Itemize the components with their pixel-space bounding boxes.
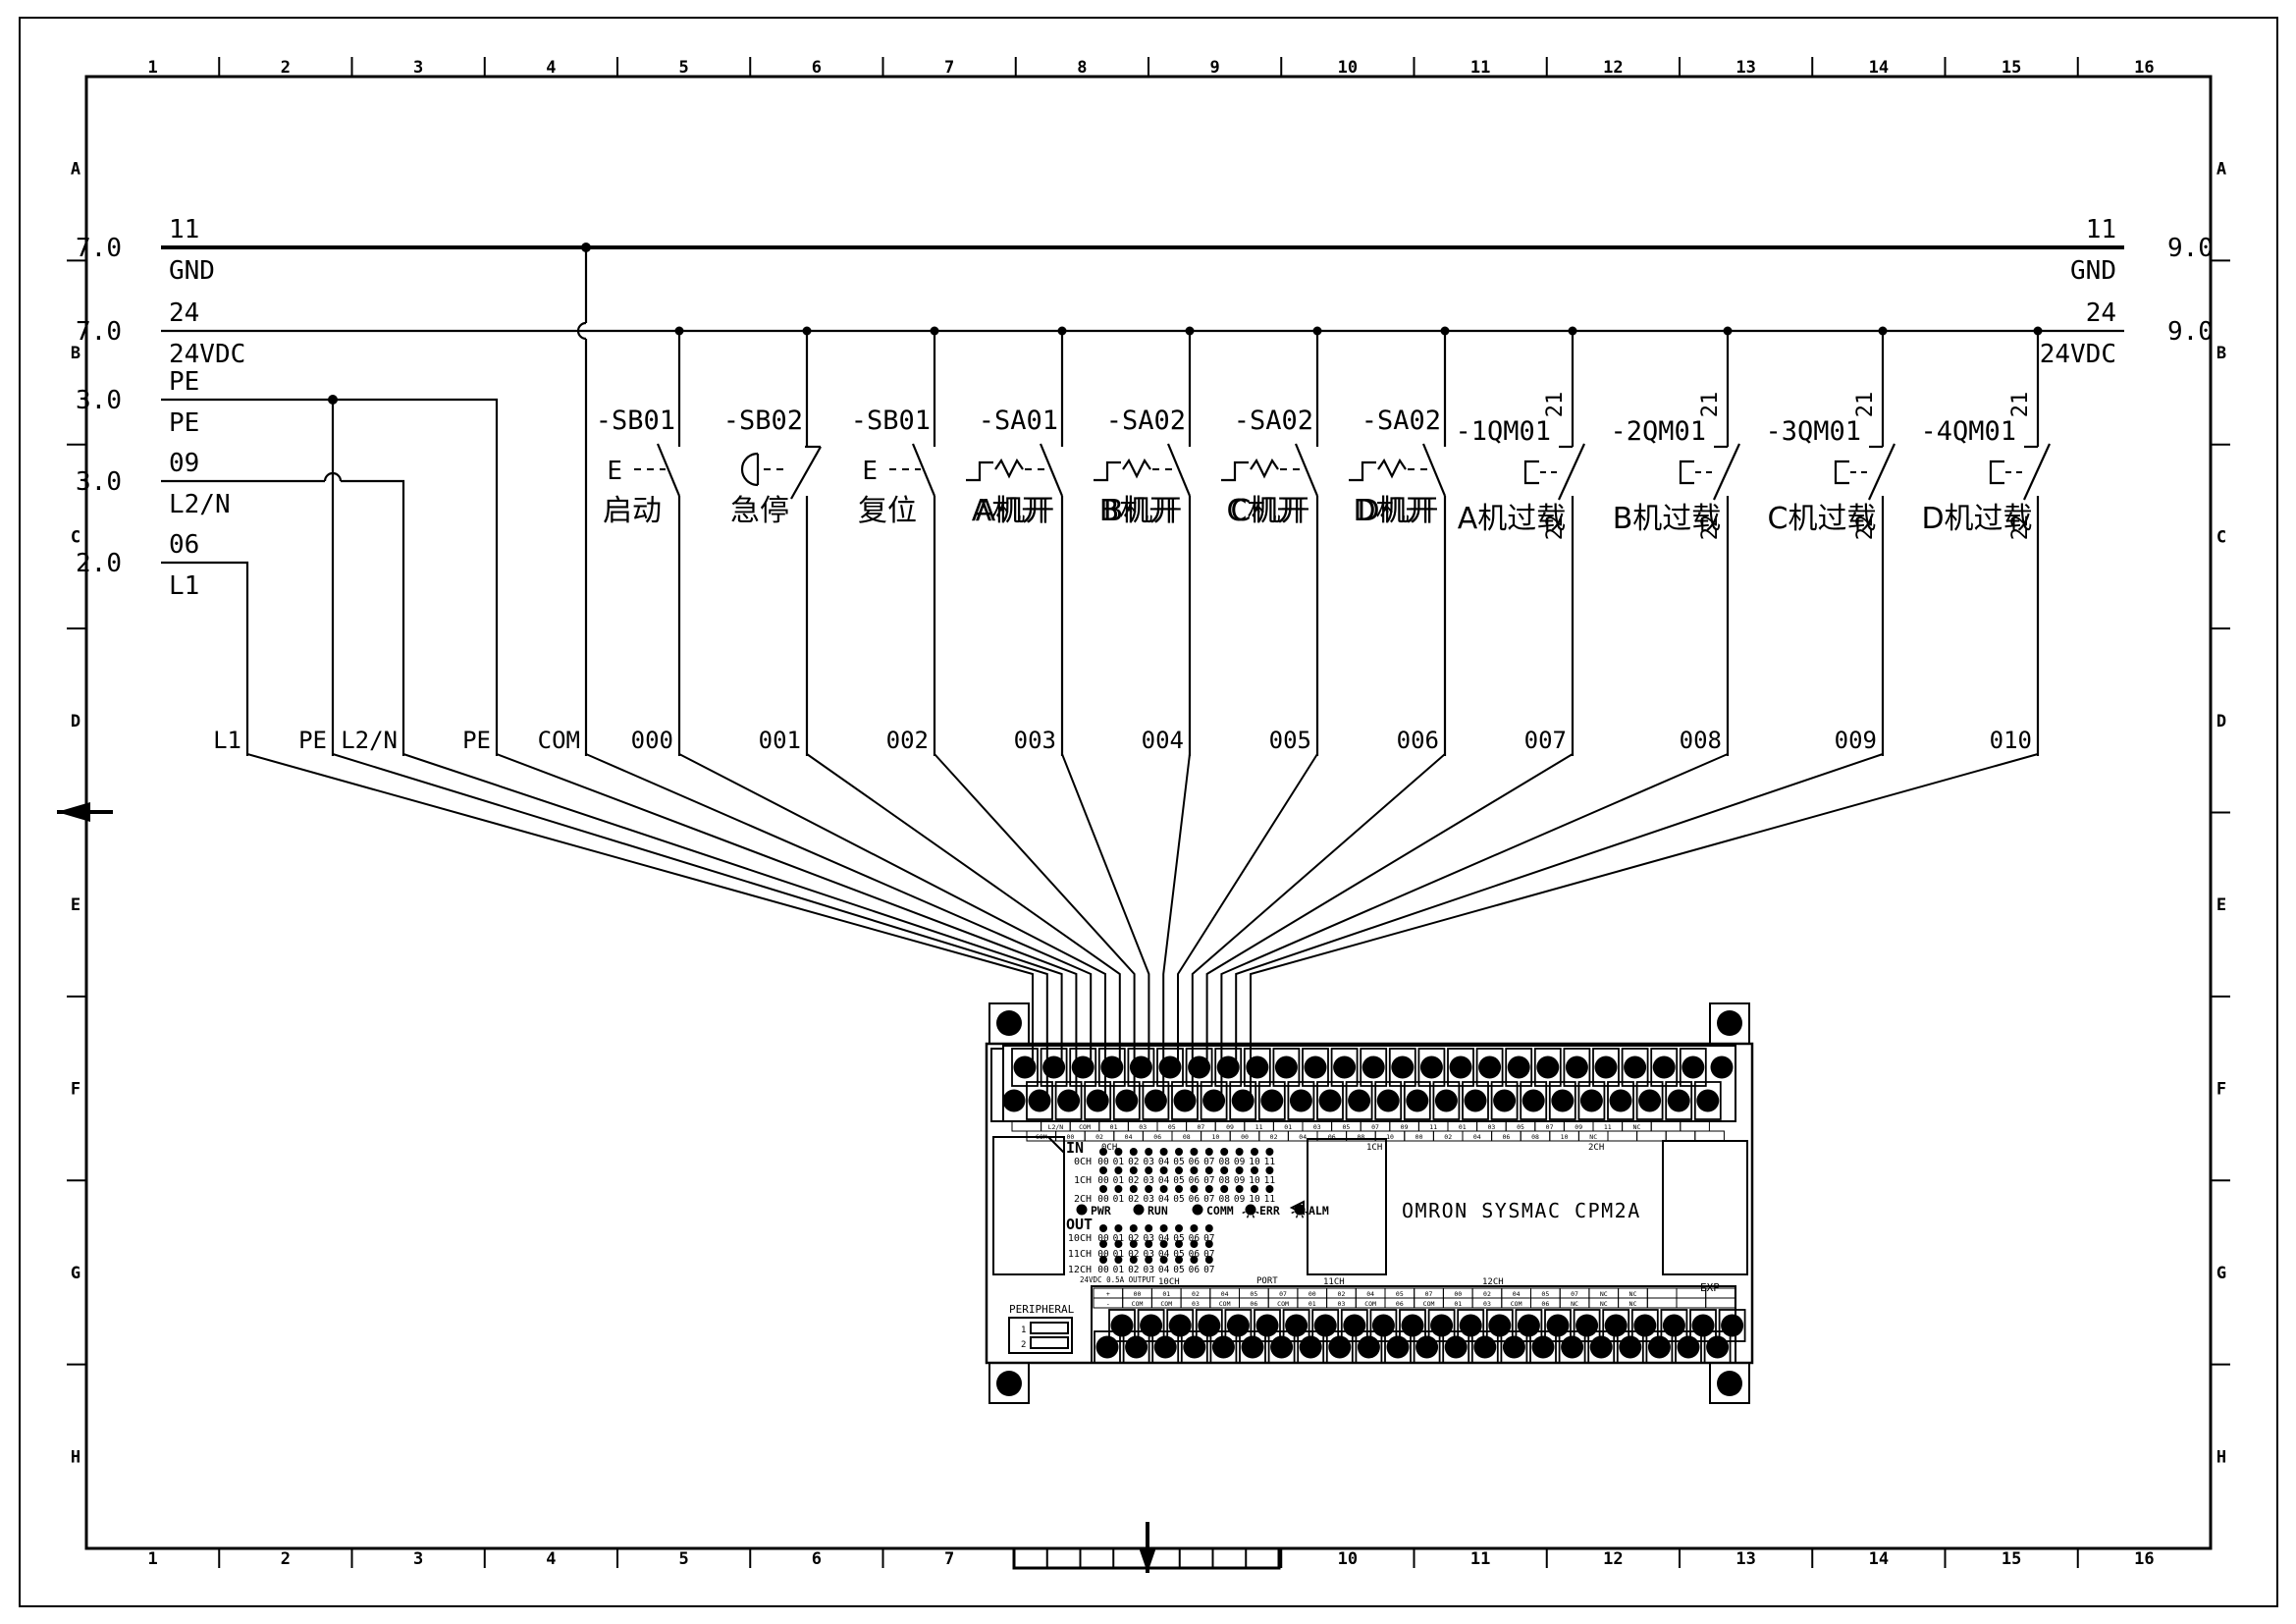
terminal-label: NC: [1629, 1290, 1637, 1298]
led-point-label: 02: [1128, 1157, 1139, 1167]
frame-column-label: 4: [546, 58, 556, 78]
terminal-label: 01: [1308, 1300, 1316, 1308]
led-icon: [1130, 1185, 1138, 1193]
frame-row-label: C: [2216, 527, 2226, 547]
frame-column-label: 14: [1869, 58, 1889, 78]
led-icon: [1099, 1256, 1107, 1264]
wire-number-label: 008: [1680, 727, 1722, 754]
entry-arrow-icon: [126, 551, 161, 574]
led-row-channel: 0CH: [1074, 1157, 1092, 1167]
device-id: -SA02: [1234, 406, 1313, 436]
led-icon: [1175, 1166, 1183, 1174]
led-icon: [1220, 1185, 1228, 1193]
led-point-label: 04: [1158, 1175, 1170, 1186]
terminal-label: 02: [1095, 1133, 1103, 1141]
terminal-label: 01: [1110, 1123, 1118, 1131]
status-led-label: PWR: [1091, 1204, 1111, 1218]
led-icon: [1175, 1224, 1183, 1232]
entry-wire-name: L1: [169, 571, 199, 601]
frame-column-label: 16: [2134, 58, 2154, 78]
frame-column-label: 11: [1470, 58, 1490, 78]
wire-number-label: 003: [1014, 727, 1056, 754]
frame-row-label: F: [2216, 1080, 2226, 1100]
terminal-label: 11: [1604, 1123, 1612, 1131]
frame-layer: [20, 18, 2277, 1606]
led-point-label: 06: [1189, 1157, 1201, 1167]
frame-column-label: 5: [679, 1549, 689, 1569]
frame-column-label: 7: [944, 1549, 954, 1569]
frame-row-label: H: [71, 1447, 80, 1467]
led-point-label: 09: [1234, 1157, 1246, 1167]
terminal-label-cell: [1637, 1131, 1667, 1141]
terminal-label-cell: [1608, 1131, 1637, 1141]
led-icon: [1205, 1148, 1213, 1156]
led-point-label: 00: [1097, 1175, 1109, 1186]
terminal-label: 05: [1250, 1290, 1257, 1298]
entry-ref: 7.0: [76, 234, 122, 263]
terminal-label: 07: [1279, 1290, 1287, 1298]
led-icon: [1251, 1185, 1258, 1193]
terminal-label: 04: [1513, 1290, 1521, 1298]
terminal-label: 03: [1487, 1123, 1495, 1131]
overload-trip-icon: [1991, 461, 2004, 483]
led-row-channel: 11CH: [1068, 1249, 1092, 1260]
terminal-label: 06: [1250, 1300, 1257, 1308]
led-point-label: 06: [1189, 1175, 1201, 1186]
terminal-label: 04: [1299, 1133, 1307, 1141]
schematic-sheet: IN OUT OMRON SYSMAC CPM2A PORT PERIPHERA…: [0, 0, 2296, 1624]
com-feed-wire: [578, 247, 586, 756]
led-point-label: 01: [1113, 1175, 1125, 1186]
led-row-channel: 2CH: [1074, 1194, 1092, 1205]
plc-model-label: OMRON SYSMAC CPM2A: [1402, 1199, 1641, 1222]
terminal-label: 11: [1429, 1123, 1437, 1131]
wire-number-label: PE: [298, 727, 327, 754]
led-point-label: 05: [1173, 1175, 1184, 1186]
led-icon: [1251, 1166, 1258, 1174]
status-led-icon: [1193, 1205, 1203, 1216]
status-led-label: ALM: [1308, 1204, 1329, 1218]
device-name-cn: C机开: [1227, 494, 1307, 528]
mounting-hole-icon: [996, 1010, 1022, 1036]
wire-number-label: 004: [1142, 727, 1184, 754]
mounting-hole-icon: [1717, 1371, 1742, 1396]
led-point-label: 01: [1113, 1265, 1125, 1275]
led-icon: [1130, 1224, 1138, 1232]
fan-wire: [807, 754, 1120, 1067]
contact-terminal-no: 22: [1543, 514, 1568, 541]
terminal-label: 00: [1066, 1133, 1074, 1141]
led-icon: [1145, 1185, 1152, 1193]
terminal-label: 03: [1192, 1300, 1200, 1308]
terminal-label: 07: [1571, 1290, 1578, 1298]
contact-blade: [1559, 444, 1584, 500]
device-id: -1QM01: [1455, 416, 1551, 447]
led-point-label: 03: [1143, 1157, 1153, 1167]
led-icon: [1265, 1166, 1273, 1174]
frame-column-label: 7: [944, 58, 954, 78]
led-point-label: 01: [1113, 1194, 1125, 1205]
frame-column-label: 1: [148, 1549, 158, 1569]
contact-blade: [1869, 444, 1895, 500]
terminal-label: 04: [1366, 1290, 1374, 1298]
led-icon: [1190, 1148, 1198, 1156]
terminal-label: NC: [1629, 1300, 1637, 1308]
led-icon: [1265, 1148, 1273, 1156]
exit-ref: 9.0: [2167, 317, 2214, 347]
terminal-label: COM: [1160, 1300, 1172, 1308]
device-name-cn: D机开: [1353, 494, 1434, 528]
terminal-label: 01: [1284, 1123, 1292, 1131]
terminal-label: NC: [1571, 1300, 1578, 1308]
terminal-label-cell: [1681, 1121, 1710, 1131]
terminal-label: 04: [1473, 1133, 1481, 1141]
entry-wire-name: L2/N: [169, 490, 231, 519]
selector-actuator-icon: [1349, 462, 1376, 480]
plc-in-label: IN: [1066, 1139, 1084, 1157]
exit-wire-name: GND: [2070, 256, 2116, 286]
terminal-label: 00: [1415, 1133, 1423, 1141]
led-point-label: 10: [1249, 1175, 1260, 1186]
exit-wire-name: 24VDC: [2040, 340, 2116, 369]
terminal-label-cell: [1706, 1298, 1735, 1308]
led-point-label: 02: [1128, 1194, 1139, 1205]
status-led-ray: [1243, 1212, 1246, 1213]
frame-column-label: 6: [812, 58, 822, 78]
entry-arrow-icon: [126, 388, 161, 411]
led-icon: [1130, 1166, 1138, 1174]
led-point-label: 05: [1173, 1157, 1184, 1167]
fan-wire: [247, 754, 1033, 1067]
led-icon: [1114, 1166, 1122, 1174]
status-led-label: ERR: [1259, 1204, 1280, 1218]
terminal-label: 10: [1561, 1133, 1569, 1141]
frame-row-label: F: [71, 1080, 80, 1100]
led-icon: [1236, 1148, 1244, 1156]
led-point-label: 10: [1249, 1157, 1260, 1167]
entry-wire-name: 24VDC: [169, 340, 245, 369]
strip-marker-10ch: 10CH: [1158, 1277, 1180, 1287]
contact-terminal-no: 21: [1853, 392, 1878, 418]
frame-column-label: 8: [1077, 58, 1087, 78]
led-point-label: 03: [1143, 1265, 1153, 1275]
terminal-label-cell: [1666, 1131, 1695, 1141]
wire-number-label: 010: [1990, 727, 2032, 754]
strip-marker-2ch: 2CH: [1588, 1143, 1604, 1153]
status-led-ray: [1253, 1216, 1254, 1218]
terminal-label: 00: [1134, 1290, 1142, 1298]
contact-terminal-no: 22: [1853, 514, 1878, 541]
frame-row-label: D: [2216, 712, 2226, 731]
terminal-label: L2/N: [1048, 1123, 1064, 1131]
entry-arrow-icon: [126, 469, 161, 493]
plc-out-label: OUT: [1066, 1216, 1093, 1233]
entry-arrow-icon: [126, 236, 161, 259]
led-icon: [1265, 1185, 1273, 1193]
terminal-label-cell: [1012, 1121, 1041, 1131]
junction-dot: [328, 395, 338, 405]
led-icon: [1205, 1166, 1213, 1174]
terminal-label: 09: [1401, 1123, 1409, 1131]
pushbutton-actuator-icon: E: [862, 457, 878, 486]
frame-column-label: 15: [2002, 1549, 2021, 1569]
led-icon: [1145, 1256, 1152, 1264]
terminal-label: 10: [1386, 1133, 1394, 1141]
led-point-label: 09: [1234, 1175, 1246, 1186]
led-icon: [1175, 1185, 1183, 1193]
exit-arrow-icon: [2124, 319, 2160, 343]
terminal-label: 08: [1357, 1133, 1364, 1141]
plc-left-panel: [993, 1137, 1064, 1274]
frame-column-label: 12: [1603, 58, 1623, 78]
frame-column-label: 10: [1338, 1549, 1358, 1569]
frame-column-label: 3: [413, 1549, 423, 1569]
frame-column-label: 2: [281, 58, 291, 78]
led-point-label: 07: [1203, 1157, 1214, 1167]
led-icon: [1114, 1256, 1122, 1264]
pe-feed-wire: [161, 400, 497, 756]
wire-number-label: 000: [631, 727, 673, 754]
frame-column-label: 11: [1470, 1549, 1490, 1569]
entry-wire-name: GND: [169, 256, 215, 286]
terminal-label: 00: [1241, 1133, 1249, 1141]
plc-terminal-endcap: [991, 1049, 1003, 1121]
terminal-label: 08: [1531, 1133, 1539, 1141]
terminal-label: 05: [1517, 1123, 1524, 1131]
led-icon: [1190, 1240, 1198, 1248]
frame-column-label: 15: [2002, 58, 2021, 78]
led-icon: [1099, 1148, 1107, 1156]
entry-ref: 3.0: [76, 386, 122, 415]
terminal-label: NC: [1632, 1123, 1640, 1131]
led-icon: [1205, 1240, 1213, 1248]
terminal-label: 02: [1270, 1133, 1278, 1141]
led-icon: [1114, 1224, 1122, 1232]
selector-actuator-icon: [1378, 460, 1406, 476]
dip-slider: [1031, 1337, 1068, 1348]
mounting-hole-icon: [1717, 1010, 1742, 1036]
led-point-label: 05: [1173, 1194, 1184, 1205]
frame-column-label: 14: [1869, 1549, 1889, 1569]
frame-row-label: G: [71, 1264, 80, 1283]
wire-number-label: 005: [1269, 727, 1311, 754]
contact-terminal-no: 21: [1543, 392, 1568, 418]
terminal-label: 06: [1541, 1300, 1549, 1308]
terminal-label: -: [1106, 1300, 1110, 1308]
device-id: -SA01: [979, 406, 1058, 436]
wire-number-label: PE: [462, 727, 491, 754]
wire-number-label: 006: [1397, 727, 1439, 754]
terminal-label: 00: [1454, 1290, 1462, 1298]
led-icon: [1130, 1256, 1138, 1264]
led-icon: [1130, 1240, 1138, 1248]
frame-row-label: G: [2216, 1264, 2226, 1283]
strip-marker-1ch: 1CH: [1366, 1143, 1382, 1153]
frame-column-label: 5: [679, 58, 689, 78]
led-icon: [1190, 1256, 1198, 1264]
led-point-label: 04: [1158, 1265, 1170, 1275]
strip-marker-11ch: 11CH: [1323, 1277, 1345, 1287]
terminal-label: NC: [1589, 1133, 1597, 1141]
status-led-icon: [1295, 1205, 1306, 1216]
led-icon: [1160, 1224, 1168, 1232]
wire-number-label: L2/N: [341, 727, 398, 754]
terminal-label: COM: [1132, 1300, 1144, 1308]
exit-wire-no: 11: [2086, 215, 2116, 244]
dip-label-1: 1: [1021, 1326, 1026, 1335]
junction-dot: [581, 243, 591, 252]
terminal-label: 01: [1459, 1123, 1467, 1131]
mounting-hole-icon: [996, 1371, 1022, 1396]
dip-slider: [1031, 1323, 1068, 1333]
terminal-label-cell: [1695, 1131, 1725, 1141]
status-led-ray: [1248, 1216, 1249, 1218]
terminal-label: COM: [1079, 1123, 1091, 1131]
terminal-label: 07: [1371, 1123, 1379, 1131]
terminal-label: 06: [1502, 1133, 1510, 1141]
entry-wire-no: 24: [169, 298, 199, 328]
fan-wire: [1178, 754, 1317, 1067]
schematic-svg: IN OUT OMRON SYSMAC CPM2A PORT PERIPHERA…: [0, 0, 2296, 1624]
terminal-label: 05: [1541, 1290, 1549, 1298]
bottom-ruler-strip: [1014, 1548, 1279, 1568]
led-icon: [1099, 1240, 1107, 1248]
terminal-label: 08: [1183, 1133, 1191, 1141]
device-id: -3QM01: [1765, 416, 1861, 447]
dip-label-2: 2: [1021, 1340, 1026, 1350]
led-point-label: 04: [1158, 1157, 1170, 1167]
estop-mushroom-icon: [742, 454, 758, 485]
overload-trip-icon: [1681, 461, 1694, 483]
led-row-channel: 1CH: [1074, 1175, 1092, 1186]
terminal-label: 02: [1444, 1133, 1452, 1141]
terminal-label: 01: [1162, 1290, 1170, 1298]
exit-arrow-icon: [2124, 236, 2160, 259]
terminal-label-cell: [1677, 1298, 1706, 1308]
contact-blade: [1714, 444, 1739, 500]
status-led-ray: [1297, 1216, 1298, 1218]
led-icon: [1160, 1148, 1168, 1156]
led-point-label: 02: [1128, 1175, 1139, 1186]
terminal-label: 05: [1342, 1123, 1350, 1131]
frame-row-label: E: [71, 895, 80, 915]
frame-row-label: A: [71, 160, 80, 180]
terminal-label: 03: [1338, 1300, 1346, 1308]
led-icon: [1175, 1256, 1183, 1264]
selector-actuator-icon: [966, 462, 993, 480]
frame-column-label: 16: [2134, 1549, 2154, 1569]
led-point-label: 09: [1234, 1194, 1246, 1205]
entry-ref: 7.0: [76, 317, 122, 347]
status-led-icon: [1134, 1205, 1145, 1216]
terminal-label: 03: [1313, 1123, 1321, 1131]
terminal-label: +: [1106, 1290, 1110, 1298]
frame-row-label: B: [71, 344, 80, 363]
terminal-label: 06: [1153, 1133, 1161, 1141]
pushbutton-actuator-icon: E: [607, 457, 622, 486]
terminal-label: COM: [1423, 1300, 1435, 1308]
terminal-label: 07: [1197, 1123, 1204, 1131]
led-icon: [1190, 1166, 1198, 1174]
selector-actuator-icon: [995, 460, 1023, 476]
status-led-icon: [1077, 1205, 1088, 1216]
device-id: -SA02: [1362, 406, 1441, 436]
wire-number-label: L1: [213, 727, 241, 754]
status-led-ray: [1292, 1212, 1295, 1213]
led-point-label: 07: [1203, 1175, 1214, 1186]
entry-wire-no: 11: [169, 215, 199, 244]
exit-ref: 9.0: [2167, 234, 2214, 263]
led-icon: [1190, 1185, 1198, 1193]
terminal-label: 11: [1255, 1123, 1263, 1131]
led-icon: [1236, 1185, 1244, 1193]
led-icon: [1099, 1166, 1107, 1174]
frame-column-label: 13: [1735, 1549, 1755, 1569]
device-id: -SB01: [596, 406, 675, 436]
contact-terminal-no: 21: [2008, 392, 2033, 418]
device-name-cn: B机开: [1099, 494, 1179, 528]
overload-trip-icon: [1525, 461, 1539, 483]
led-point-label: 05: [1173, 1265, 1184, 1275]
terminal-label: 05: [1396, 1290, 1404, 1298]
led-icon: [1205, 1185, 1213, 1193]
terminal-label: COM: [1277, 1300, 1289, 1308]
generated-layer: 1122334455667789101011111212131314141515…: [67, 57, 2230, 1569]
terminal-label: 09: [1226, 1123, 1234, 1131]
terminal-label: 07: [1425, 1290, 1433, 1298]
terminal-label: COM: [1036, 1133, 1047, 1141]
led-icon: [1160, 1185, 1168, 1193]
led-icon: [1251, 1148, 1258, 1156]
led-icon: [1160, 1240, 1168, 1248]
terminal-label: COM: [1219, 1300, 1231, 1308]
contact-blade: [2024, 444, 2050, 500]
outer-border: [20, 18, 2277, 1606]
led-point-label: 06: [1189, 1194, 1201, 1205]
terminal-label: 01: [1454, 1300, 1462, 1308]
wire-number-label: 002: [886, 727, 929, 754]
terminal-label: 09: [1575, 1123, 1582, 1131]
terminal-label: 02: [1192, 1290, 1200, 1298]
selector-actuator-icon: [1123, 460, 1150, 476]
device-name-cn: 启动: [603, 494, 662, 528]
led-point-label: 06: [1189, 1265, 1201, 1275]
device-id: -SB02: [723, 406, 803, 436]
frame-row-label: E: [2216, 895, 2226, 915]
device-id: -SB01: [851, 406, 931, 436]
exit-wire-no: 24: [2086, 298, 2116, 328]
device-name-cn: A机开: [972, 494, 1051, 528]
led-icon: [1114, 1148, 1122, 1156]
device-id: -4QM01: [1920, 416, 2016, 447]
terminal-label: 04: [1125, 1133, 1133, 1141]
selector-actuator-icon: [1251, 460, 1278, 476]
frame-column-label: 2: [281, 1549, 291, 1569]
fan-wire: [333, 754, 1047, 1101]
fan-wire: [497, 754, 1076, 1101]
led-point-label: 01: [1113, 1157, 1125, 1167]
frame-row-label: H: [2216, 1447, 2226, 1467]
frame-column-label: 3: [413, 58, 423, 78]
led-icon: [1145, 1240, 1152, 1248]
frame-column-label: 6: [812, 1549, 822, 1569]
led-point-label: 08: [1218, 1175, 1230, 1186]
led-icon: [1205, 1256, 1213, 1264]
status-led-ray: [1256, 1212, 1259, 1213]
status-led-icon: [1246, 1205, 1256, 1216]
contact-terminal-no: 22: [1698, 514, 1723, 541]
wire-number-label: 001: [759, 727, 801, 754]
